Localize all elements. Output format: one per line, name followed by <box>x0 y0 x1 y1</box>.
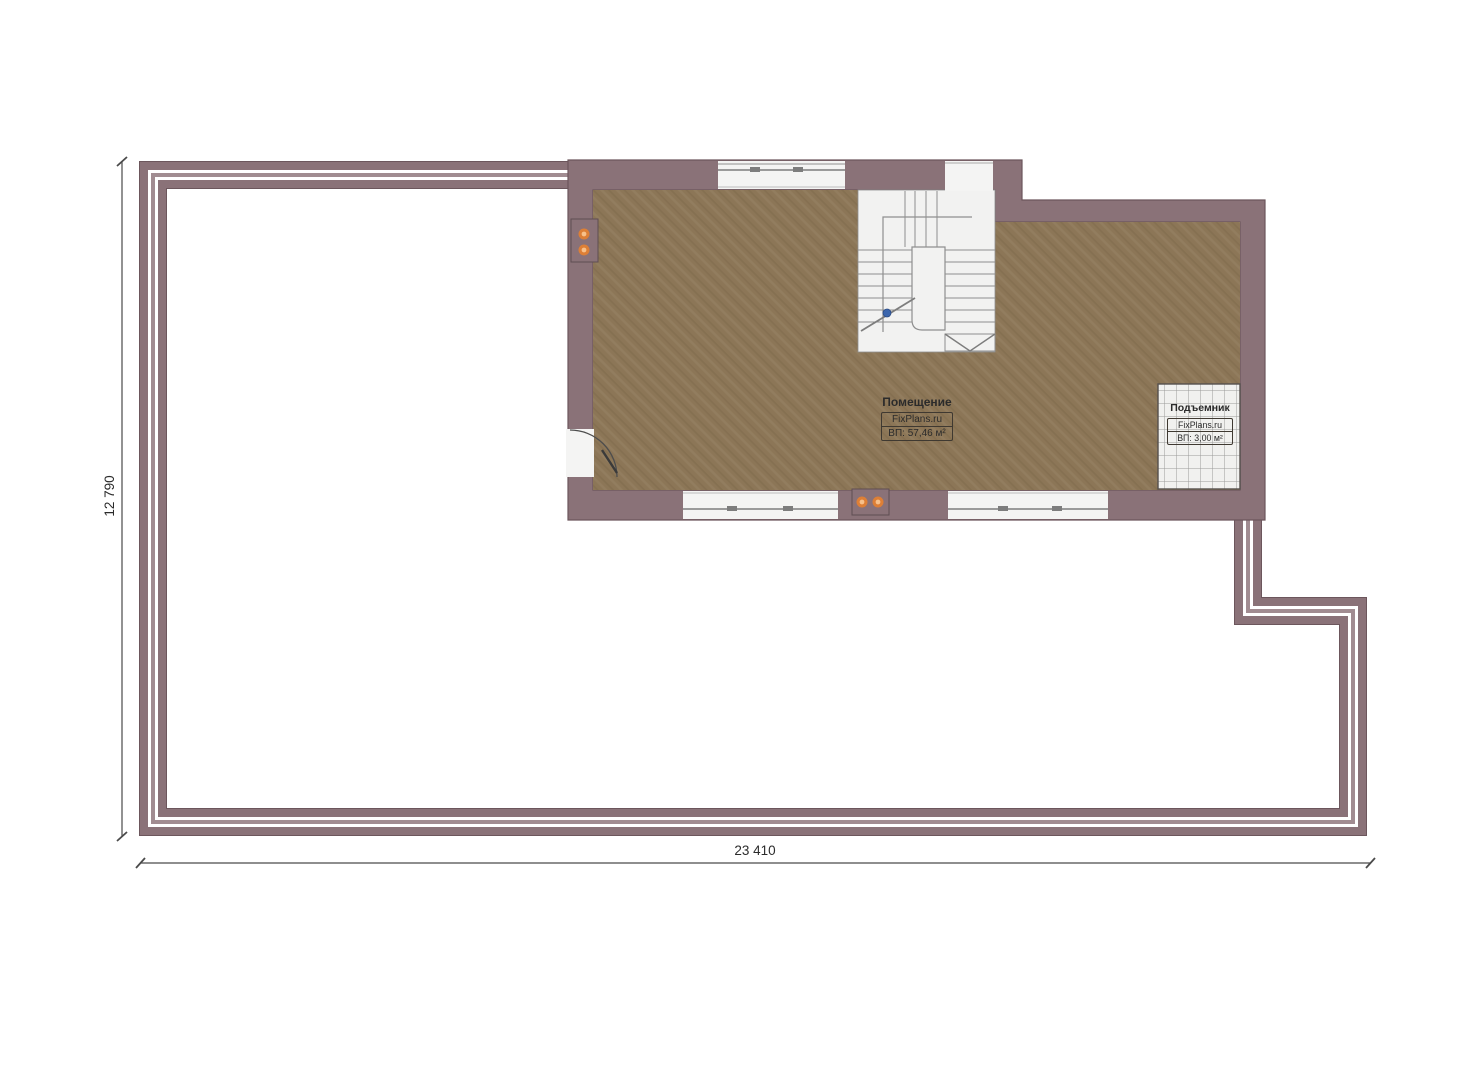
room-info-box: FixPlans.ru ВП: 57,46 м² <box>881 412 953 441</box>
electrical-panel-left <box>571 219 598 262</box>
staircase <box>858 190 995 352</box>
room-brand: FixPlans.ru <box>882 413 952 426</box>
lift-title: Подъемник <box>1160 401 1240 415</box>
dimension-width-value: 23 410 <box>655 843 855 858</box>
electrical-panel-bottom <box>852 489 889 515</box>
stair-start-marker <box>883 309 891 317</box>
dimension-line-bottom <box>136 858 1375 868</box>
lift-area: ВП: 3,00 м² <box>1168 431 1232 444</box>
lift-label: Подъемник FixPlans.ru ВП: 3,00 м² <box>1160 401 1240 445</box>
lift-brand: FixPlans.ru <box>1168 419 1232 431</box>
window-bottom-left <box>683 491 838 519</box>
window-bottom-right <box>948 491 1108 519</box>
room-area: ВП: 57,46 м² <box>882 426 952 440</box>
lift-info-box: FixPlans.ru ВП: 3,00 м² <box>1167 418 1233 445</box>
dimension-line-left <box>117 157 127 841</box>
stair-top-opening <box>945 161 993 191</box>
stair-void <box>912 247 945 330</box>
window-top <box>718 161 845 189</box>
floor-plan-page: Помещение FixPlans.ru ВП: 57,46 м² Подъе… <box>0 0 1474 1080</box>
room-label: Помещение FixPlans.ru ВП: 57,46 м² <box>872 395 962 441</box>
dimension-height-value: 12 790 <box>102 456 118 536</box>
stair-direction-arrow <box>945 334 995 351</box>
room-title: Помещение <box>872 395 962 409</box>
floor-plan-drawing <box>0 0 1474 1080</box>
